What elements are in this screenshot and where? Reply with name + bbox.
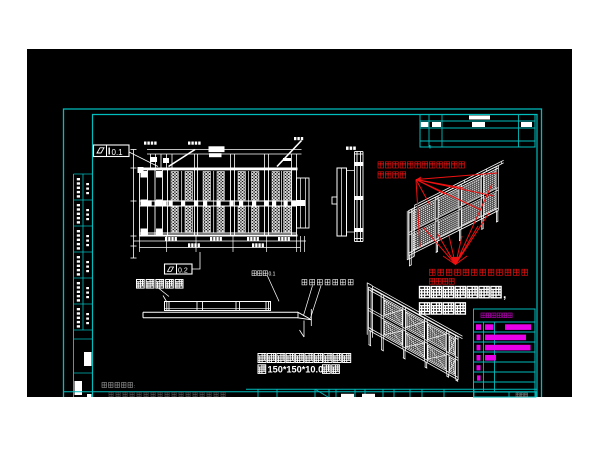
svg-text:0.1: 0.1 [112,148,124,157]
svg-text:150*150*10.0: 150*150*10.0 [268,364,324,374]
svg-text:0.1: 0.1 [269,272,276,278]
svg-text:0.2: 0.2 [178,267,188,274]
svg-text:,: , [503,287,506,301]
svg-text::: : [134,384,135,390]
